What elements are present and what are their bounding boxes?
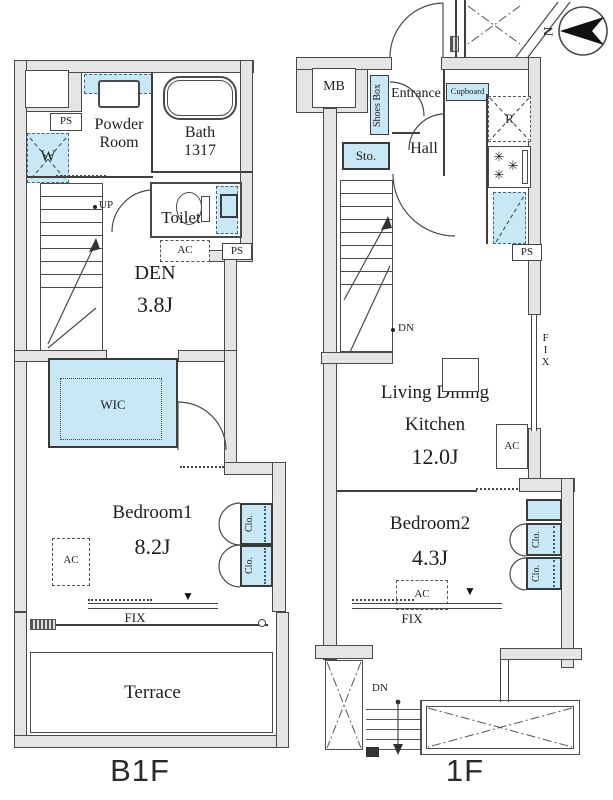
bedroom2-size-label: 4.3J [355,545,505,570]
b1f-closet-b-label: Clo. [244,550,258,582]
bedroom1-size-label: 8.2J [85,534,220,559]
bedroom2-top-wall [337,490,477,492]
porch-wall-line-2 [464,0,466,57]
stove-burner-icon-3: ✳ [492,168,506,183]
b1f-closet-door-arc-4 [219,566,240,587]
f1-closet-door-arc-1 [510,524,526,540]
floor-plan-canvas: PS W Toilet AC PS UP Powder Room Bath 13… [0,0,613,800]
b1f-closet-a-label: Clo. [244,508,258,540]
b1f-up-dot [93,205,97,209]
entrance-hall-stub [392,132,420,134]
f1-left-wall [323,108,337,660]
f1-fix-label: FIX [382,612,442,627]
b1f-closet-b-shelf [264,548,266,584]
stove-grill [522,150,528,184]
den-size-label: 3.8J [105,292,205,317]
meter-box-label: MB [312,79,356,95]
b1f-terrace-left-wall [14,612,27,748]
porch-x-mark-2 [468,6,520,44]
f1-top-wall-right [441,57,540,70]
wic-label: WIC [48,398,178,413]
f1-void-column [325,660,363,750]
porch-hatch-block [450,36,459,52]
washer-label: W [27,148,69,166]
b1f-floor-label: B1F [90,753,190,789]
stove-burner-icon-1: ✳ [492,150,506,165]
ldk-name-line1: Living Dining [355,382,515,404]
f1-dn-lower-label: DN [372,682,412,695]
b1f-closet-door-arc-2 [219,524,240,545]
bathtub-inner [167,80,233,116]
b1f-ps-side-label: PS [231,245,243,257]
ldk-size-label: 12.0J [355,444,515,469]
b1f-terrace-right-wall [276,612,289,748]
f1-exterior-stairs-base [366,747,379,757]
b1f-gutter-line [30,624,268,626]
bath-bottom-wall [151,171,253,173]
f1-right-wall-lower [561,478,574,668]
f1-closet-b-shelf [553,560,555,587]
f1-ps-label: PS [521,246,533,258]
cupboard-label: Cupboard [446,87,489,97]
b1f-lightwell [25,70,69,108]
entrance-door-arc [390,3,443,57]
f1-floor-label: 1F [420,753,510,789]
f1-right-window [531,315,537,431]
f1-void-vline-1 [500,660,501,702]
f1-dn-upper-label: DN [398,322,432,335]
storage-label: Sto. [342,149,390,164]
toilet-handwash [220,194,238,218]
b1f-stair-treads [41,184,102,296]
compass-north-label: N [542,23,557,39]
f1-void-inner [426,706,574,749]
entrance-kitchen-partition [443,70,445,176]
f1-dn-dot [391,328,395,332]
f1-bottomleft-band-wall [315,645,373,659]
f1-bottomright-band-wall [500,648,582,660]
b1f-closet-door-arc-1 [219,503,240,524]
f1-closet-a-label: Clo. [531,526,545,553]
b1f-fix-window [88,603,218,609]
f1-ac-ldk-label: AC [496,440,528,453]
refrigerator-label: R [488,112,531,127]
f1-fix-window [352,603,502,609]
b1f-left-wall [14,60,27,612]
f1-stair-treads [341,181,392,285]
bedroom1-name-label: Bedroom1 [85,502,220,524]
f1-closet-top [526,499,562,521]
entrance-label: Entrance [384,86,448,102]
b1f-gutter-drain [258,619,266,627]
b1f-ac-den-label: AC [160,244,210,257]
b1f-bedroom-top-hatch [180,466,224,468]
f1-closet-a-shelf [553,526,555,553]
powder-room-label: Powder Room [84,116,154,153]
f1-closet-door-arc-3 [510,558,526,574]
b1f-fix-hatch [88,599,152,601]
f1-closet-door-arc-2 [510,540,526,556]
bath-label: Bath 1317 [158,124,242,161]
f1-closet-b-label: Clo. [531,560,545,587]
bedroom2-top-hatch [476,488,518,490]
b1f-entry-marker-icon: ▼ [182,590,194,602]
b1f-ps-top-box: PS [50,113,82,131]
stove-burner-icon-2: ✳ [506,159,520,174]
b1f-right-wall-bedroom [272,462,286,612]
f1-closet-door-arc-4 [510,574,526,590]
kitchen-sink [493,192,526,244]
f1-ps-box: PS [512,244,542,261]
kitchen-island [442,358,479,392]
b1f-closet-a-shelf [264,506,266,542]
b1f-terrace-bottom-wall [14,735,289,748]
ldk-name-line2: Kitchen [355,414,515,436]
b1f-right-wall-mid [224,350,237,474]
hall-ldk-door-arc [393,174,455,236]
f1-stair-band-wall [321,352,393,364]
b1f-ps-side-box: PS [222,243,252,260]
f1-void-vline-2 [508,660,509,702]
f1-entry-marker-icon: ▼ [464,585,476,597]
compass-icon [559,7,607,55]
b1f-right-wall-den [224,250,237,362]
vanity-sink [98,80,140,108]
b1f-closet-door-arc-3 [219,545,240,566]
porch-x-mark-1 [468,6,520,44]
b1f-gutter-hatch [30,619,56,630]
wic-door-arc [178,402,226,450]
terrace-label: Terrace [95,682,210,704]
den-name-label: DEN [105,262,205,285]
b1f-ps-top-label: PS [60,115,72,127]
toilet-label: Toilet [150,208,212,228]
f1-fix-right-label: FIX [539,328,553,374]
b1f-ac-bedroom-label: AC [52,554,90,567]
bedroom2-name-label: Bedroom2 [355,513,505,535]
f1-fix-hatch [352,599,414,601]
b1f-up-label: UP [99,199,129,212]
powder-door-threshold [56,175,106,177]
